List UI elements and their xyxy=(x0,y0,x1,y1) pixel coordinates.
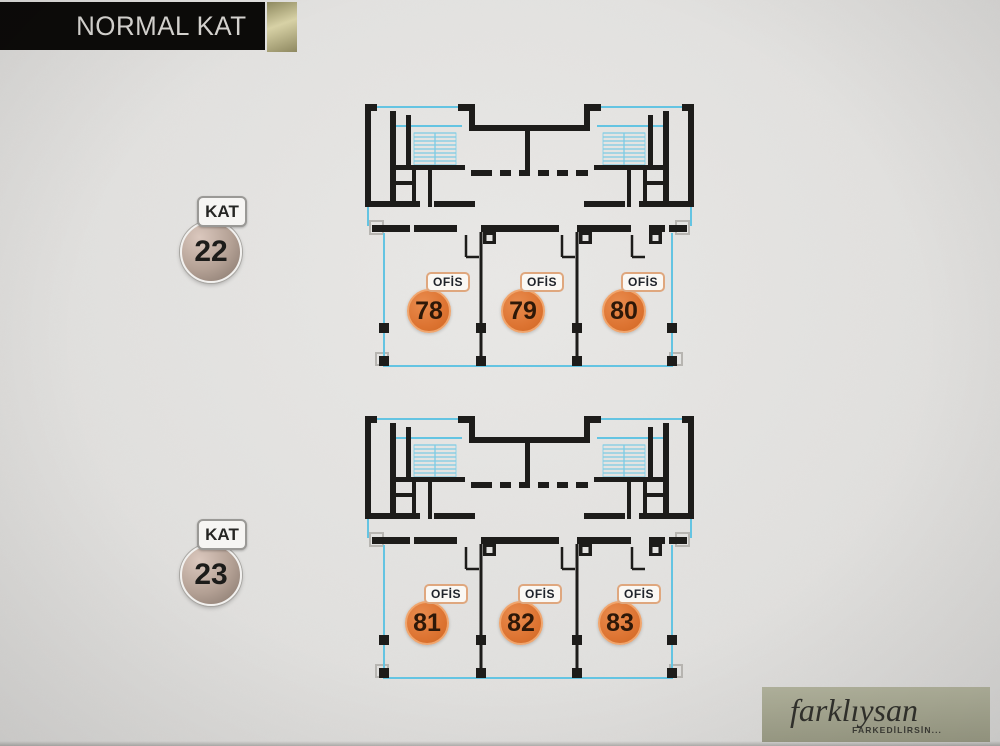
office-badge-number: 80 xyxy=(602,289,646,333)
office-badge-79[interactable]: OFİS 79 xyxy=(501,272,567,334)
brand-logo-box: farklıysan FARKEDİLİRSİN... xyxy=(762,687,990,742)
office-badge-label: OFİS xyxy=(621,272,665,292)
office-badge-label: OFİS xyxy=(617,584,661,604)
office-badge-83[interactable]: OFİS 83 xyxy=(598,584,664,646)
floor-badge-number: 22 xyxy=(180,221,242,283)
office-badge-number: 82 xyxy=(499,601,543,645)
header-bar: NORMAL KAT xyxy=(0,2,265,50)
office-badge-number: 81 xyxy=(405,601,449,645)
office-badge-82[interactable]: OFİS 82 xyxy=(499,584,565,646)
page-root: NORMAL KAT xyxy=(0,0,1000,746)
floor-badge-kat-22[interactable]: KAT 22 xyxy=(180,196,248,284)
header-gold-accent xyxy=(267,2,297,52)
office-badge-label: OFİS xyxy=(518,584,562,604)
office-badge-number: 78 xyxy=(407,289,451,333)
brand-tagline: FARKEDİLİRSİN... xyxy=(852,725,942,735)
floor-badge-number: 23 xyxy=(180,544,242,606)
floor-badge-label: KAT xyxy=(197,196,247,227)
floor-badge-label: KAT xyxy=(197,519,247,550)
page-title: NORMAL KAT xyxy=(77,11,247,42)
office-badge-label: OFİS xyxy=(520,272,564,292)
office-badge-label: OFİS xyxy=(426,272,470,292)
office-badge-80[interactable]: OFİS 80 xyxy=(602,272,668,334)
bottom-edge-shadow xyxy=(0,741,1000,746)
office-badge-number: 83 xyxy=(598,601,642,645)
office-badge-81[interactable]: OFİS 81 xyxy=(405,584,471,646)
office-badge-number: 79 xyxy=(501,289,545,333)
office-badge-label: OFİS xyxy=(424,584,468,604)
floor-badge-kat-23[interactable]: KAT 23 xyxy=(180,519,248,607)
brand-name: farklıysan xyxy=(790,694,918,726)
office-badge-78[interactable]: OFİS 78 xyxy=(407,272,473,334)
